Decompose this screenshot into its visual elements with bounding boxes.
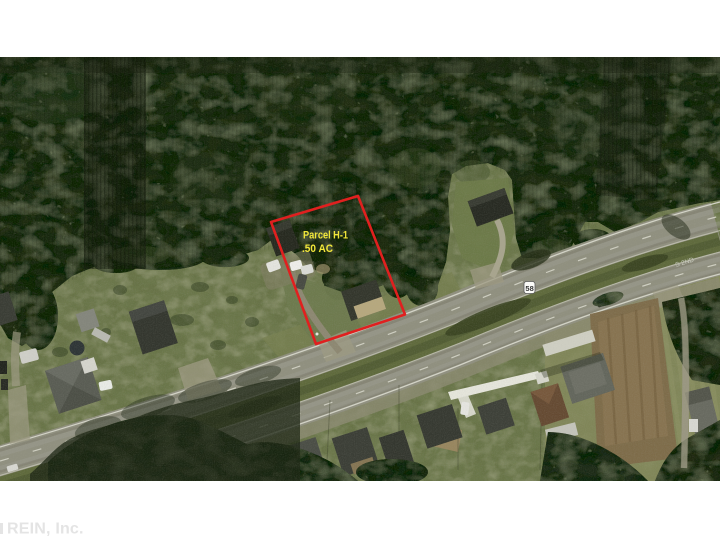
svg-text:Parcel H-1: Parcel H-1 bbox=[303, 230, 348, 242]
svg-text:REIN, Inc.: REIN, Inc. bbox=[7, 521, 84, 538]
svg-text:.50 AC: .50 AC bbox=[302, 243, 333, 255]
svg-text:58: 58 bbox=[525, 284, 533, 293]
